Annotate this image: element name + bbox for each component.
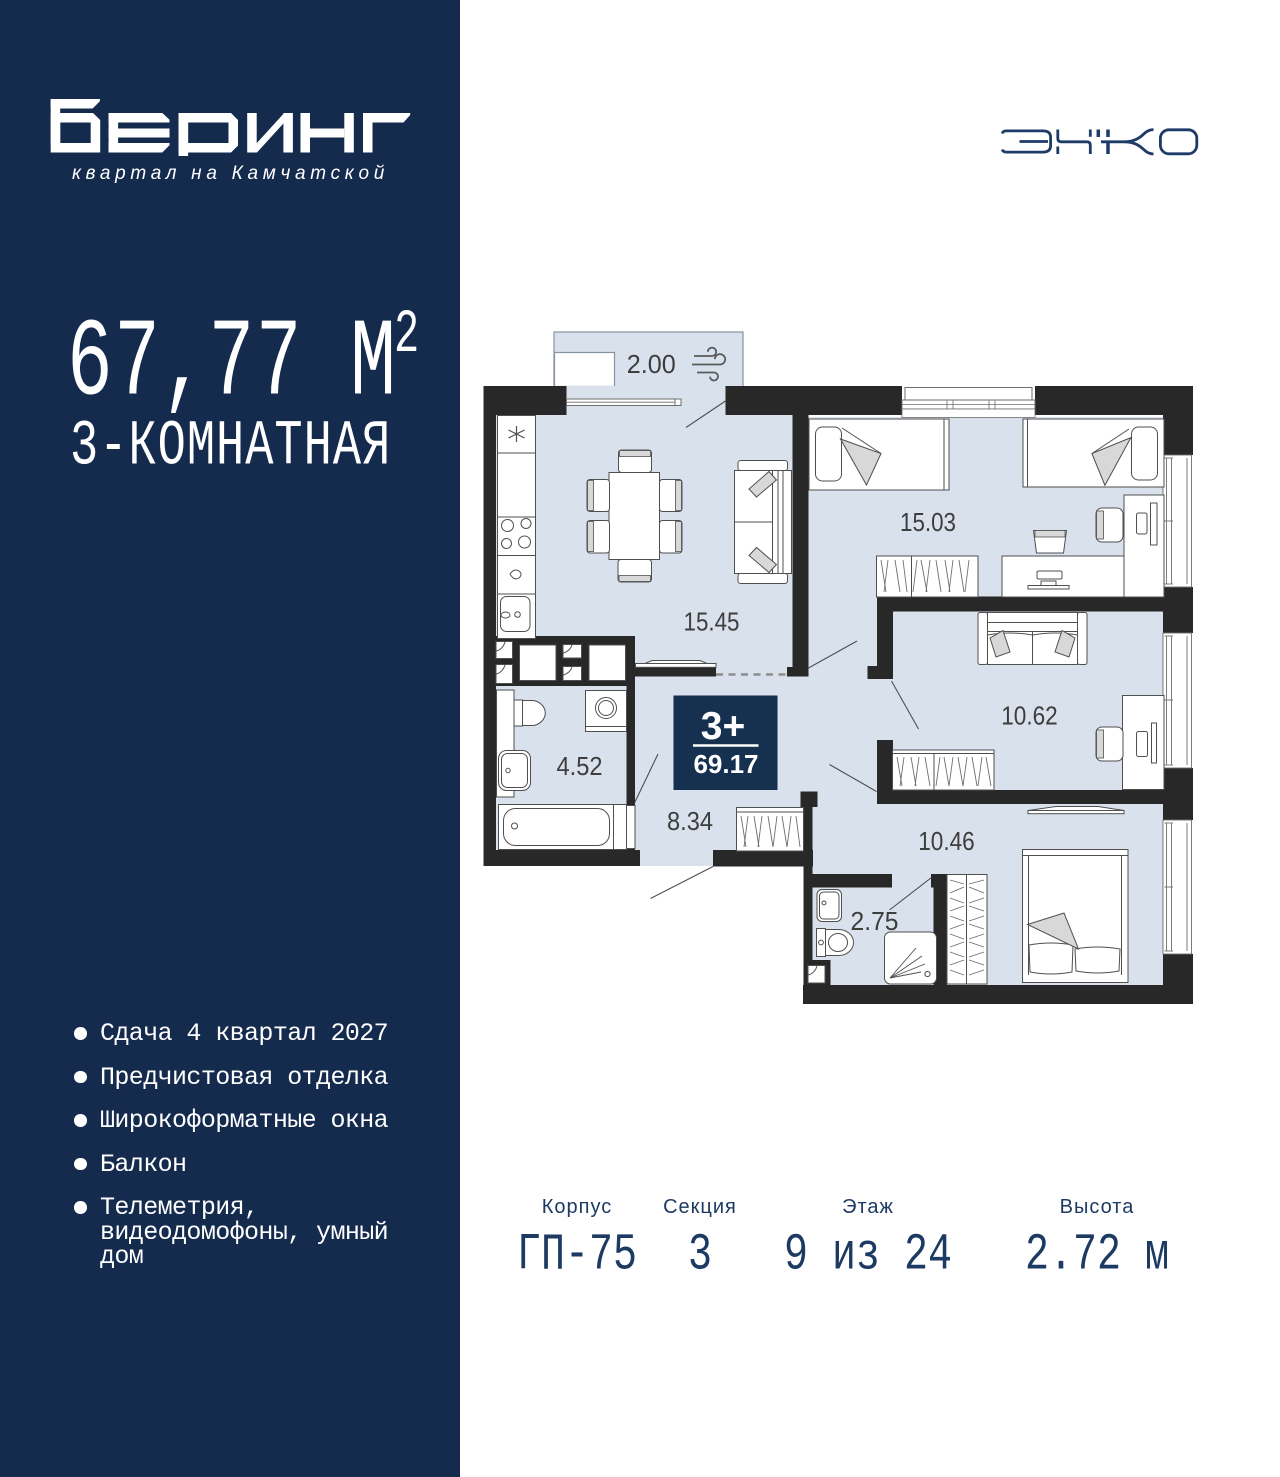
svg-text:2.75: 2.75: [851, 906, 899, 936]
svg-text:2.00: 2.00: [627, 349, 676, 379]
svg-text:15.45: 15.45: [684, 607, 740, 637]
svg-text:15.03: 15.03: [900, 507, 956, 537]
svg-text:8.34: 8.34: [667, 806, 713, 836]
svg-text:3+: 3+: [701, 705, 745, 748]
svg-text:10.62: 10.62: [1001, 701, 1058, 731]
svg-text:10.46: 10.46: [918, 826, 975, 856]
svg-text:69.17: 69.17: [693, 749, 758, 779]
svg-text:4.52: 4.52: [557, 751, 603, 781]
